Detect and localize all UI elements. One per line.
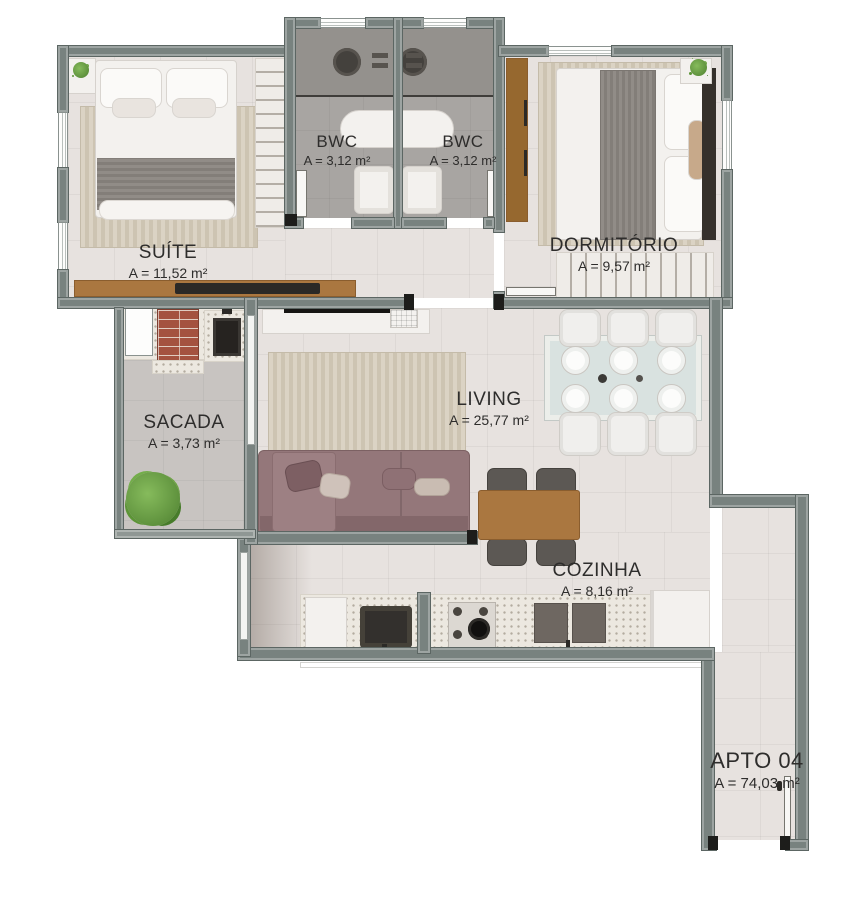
wall-dormitorio-top-b [612, 46, 732, 56]
wall-dormitorio-top-a [499, 46, 548, 56]
dormitorio-blanket [600, 70, 656, 240]
sacada-plant [126, 472, 180, 526]
churrasqueira-base [152, 360, 204, 374]
dining-chair-bottom-2 [607, 412, 649, 456]
dormitorio-wardrobe [506, 58, 528, 222]
label-dormitorio: DORMITÓRIO A = 9,57 m² [550, 235, 679, 274]
plate [657, 384, 686, 413]
door-stop [467, 530, 477, 544]
wall-sacada-left [115, 308, 123, 538]
suite-bed-footroll [99, 200, 235, 220]
churrasqueira-brick [157, 309, 199, 365]
dormitorio-area: A = 9,57 m² [550, 258, 679, 274]
bwc1-door-leaf [296, 170, 307, 217]
living-area: A = 25,77 m² [449, 412, 529, 428]
living-name: LIVING [449, 389, 529, 411]
corridor-floor-upper [722, 507, 796, 652]
plate [561, 346, 590, 375]
dormitorio-wardrobe-handle [524, 100, 527, 126]
wall-suite-bottom [58, 298, 412, 308]
bwc1-shower-knob [372, 53, 388, 58]
dining-chair-bottom-1 [559, 412, 601, 456]
label-apto: APTO 04 A = 74,03 m² [710, 748, 804, 792]
wall-corridor-top [710, 495, 808, 507]
dormitorio-door-leaf [506, 287, 556, 296]
dining-chair-top-3 [655, 309, 697, 347]
dishwasher [305, 597, 347, 651]
wall-counter-stub [418, 593, 430, 653]
wall-bwc1-bottom [352, 218, 394, 228]
cooktop-burner [479, 607, 488, 616]
suite-window-1 [58, 112, 68, 168]
wall-suite-left-a [58, 46, 68, 112]
kitchen-chair-3 [487, 538, 527, 566]
dormitorio-headboard [702, 68, 716, 240]
wall-corridor-right [796, 495, 808, 850]
bwc2-shower-knob [406, 53, 422, 58]
dormitorio-nightstand-plant [690, 59, 707, 76]
apto-area: A = 74,03 m² [710, 775, 804, 792]
suite-desk-laptop [175, 283, 320, 294]
cozinha-area: A = 8,16 m² [553, 583, 642, 599]
bwc1-shower-knob2 [372, 63, 388, 68]
kitchen-ledge [300, 662, 712, 668]
sofa-pillow-3 [382, 468, 416, 490]
cutting-board-2 [572, 603, 606, 643]
bwc1-toilet [354, 166, 394, 214]
bwc1-shower-head [333, 48, 361, 76]
sofa-pillow-2 [318, 472, 351, 500]
label-cozinha: COZINHA A = 8,16 m² [553, 560, 642, 599]
table-centerpiece-2 [636, 375, 643, 382]
kitchen-table [478, 490, 580, 540]
bwc2-name: BWC [430, 132, 497, 152]
plate [609, 384, 638, 413]
suite-area: A = 11,52 m² [129, 265, 208, 281]
bwc1-window [320, 18, 366, 28]
fridge [650, 590, 710, 650]
wall-living-right [710, 298, 722, 505]
door-stop [494, 294, 504, 310]
cooktop-burner [453, 607, 462, 616]
cutting-board-1 [534, 603, 568, 643]
wall-suite-top [58, 46, 295, 56]
suite-nightstand-plant [73, 62, 89, 78]
bwc2-toilet [402, 166, 442, 214]
wall-sacada-railing [115, 530, 255, 538]
plate [609, 346, 638, 375]
cooktop-burner [453, 630, 462, 639]
wall-living-bottom [245, 532, 477, 544]
dining-chair-top-2 [607, 309, 649, 347]
door-stop [285, 214, 297, 226]
grill-handle [222, 307, 232, 314]
suite-closet [255, 58, 287, 228]
decor-crate [390, 309, 418, 328]
dormitorio-wardrobe-handle2 [524, 150, 527, 176]
suite-window-2 [58, 222, 68, 270]
plate [657, 346, 686, 375]
bwc2-glass-line [402, 95, 494, 97]
apto-name: APTO 04 [710, 748, 804, 774]
wall-dormitorio-right-a [722, 46, 732, 100]
suite-name: SUÍTE [129, 242, 208, 264]
sofa-pillow-4 [414, 478, 450, 496]
dining-chair-top-1 [559, 309, 601, 347]
cozinha-name: COZINHA [553, 560, 642, 582]
door-stop [404, 294, 414, 310]
bwc1-name: BWC [304, 132, 371, 152]
bwc2-shower-knob2 [406, 63, 422, 68]
bwc2-window [423, 18, 467, 28]
wall-bwc2-bottom [402, 218, 446, 228]
sacada-area: A = 3,73 m² [143, 435, 224, 451]
plate [561, 384, 590, 413]
sacada-door-glass [247, 315, 255, 445]
bwc2-area: A = 3,12 m² [430, 153, 497, 168]
wall-bwc2-bottom-jamb [484, 218, 494, 228]
dining-chair-bottom-3 [655, 412, 697, 456]
dormitorio-name: DORMITÓRIO [550, 235, 679, 257]
bwc1-area: A = 3,12 m² [304, 153, 371, 168]
dormitorio-window-top [548, 46, 612, 56]
wall-suite-left-b [58, 168, 68, 222]
floor-plan: SUÍTE A = 11,52 m² BWC A = 3,12 m² BWC A… [0, 0, 864, 900]
wall-dormitorio-right-b [722, 170, 732, 308]
wall-cozinha-bottom [238, 648, 714, 660]
dormitorio-window-right [722, 100, 732, 170]
sacada-name: SACADA [143, 412, 224, 434]
door-stop [780, 836, 790, 850]
wall-bwc-divider [394, 18, 402, 228]
table-centerpiece [598, 374, 607, 383]
bwc1-glass-line [295, 95, 394, 97]
label-bwc1: BWC A = 3,12 m² [304, 132, 371, 168]
label-suite: SUÍTE A = 11,52 m² [129, 242, 208, 281]
frying-pan [468, 618, 490, 640]
label-bwc2: BWC A = 3,12 m² [430, 132, 497, 168]
cozinha-window [240, 552, 248, 640]
kitchen-sink [360, 606, 412, 648]
suite-pillow-accent-right [172, 98, 216, 118]
wall-dormitorio-bottom [494, 298, 732, 308]
suite-pillow-accent-left [112, 98, 156, 118]
label-living: LIVING A = 25,77 m² [449, 389, 529, 428]
grill [213, 318, 241, 356]
door-stop [708, 836, 718, 850]
sacada-niche-window [125, 308, 153, 356]
wall-bwc-left [285, 18, 295, 228]
label-sacada: SACADA A = 3,73 m² [143, 412, 224, 451]
